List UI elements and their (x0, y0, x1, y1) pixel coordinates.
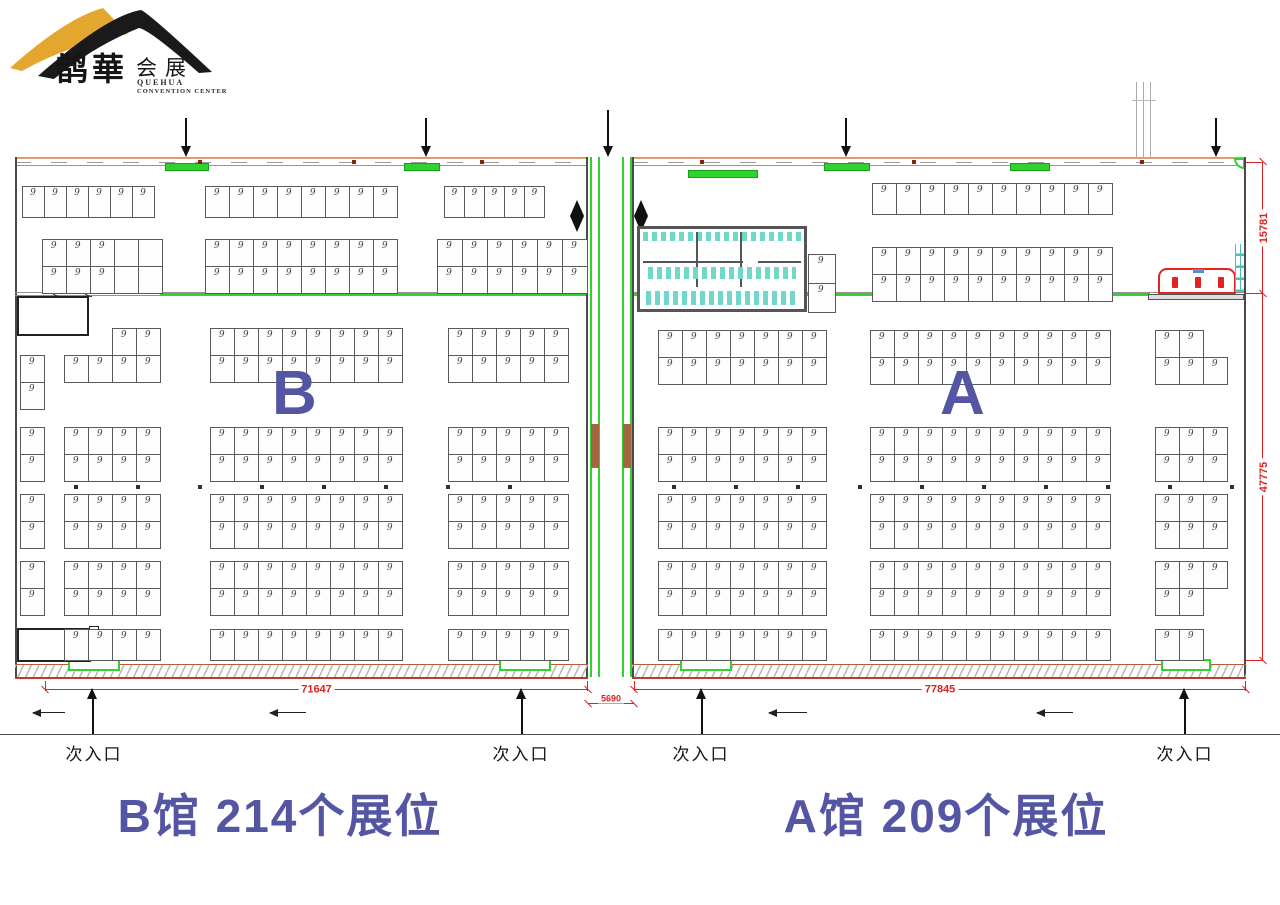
booth-cell-b: 9 (210, 521, 235, 549)
b-hall-top-wall (15, 157, 588, 166)
booth-cell-a: 9 (918, 494, 943, 522)
booth-cell-b: 9 (234, 521, 259, 549)
booth-cell-a: 9 (730, 330, 755, 358)
booth-cell-a: 9 (1155, 561, 1180, 589)
dimension-right-lower: 47775 (1262, 293, 1263, 660)
booth-cell-a: 9 (730, 588, 755, 616)
booth-cell-a: 9 (1155, 330, 1180, 358)
booth-cell-a: 9 (706, 629, 731, 661)
booth-cell-a: 9 (1086, 588, 1111, 616)
booth-cell-b: 9 (88, 454, 113, 482)
booth-cell-a: 9 (894, 357, 919, 385)
escalator-platform (1148, 294, 1244, 300)
booth-cell-a: 9 (1014, 494, 1039, 522)
booth-cell-b: 9 (66, 266, 91, 294)
escalator-icon (1158, 268, 1236, 294)
booth-cell-b: 9 (112, 454, 137, 482)
booth-cell-b: 9 (330, 588, 355, 616)
booth-cell-b: 9 (112, 427, 137, 455)
booth-cell-a: 9 (944, 247, 969, 275)
booth-cell-b: 9 (42, 239, 67, 267)
booth-cell-a: 9 (1155, 357, 1180, 385)
booth-cell-a: 9 (754, 494, 779, 522)
booth-cell-a: 9 (658, 330, 683, 358)
booth-cell-b: 9 (88, 494, 113, 522)
booth-cell-b: 9 (234, 427, 259, 455)
dimension-right-lower-value: 47775 (1258, 458, 1270, 495)
booth-cell-b: 9 (472, 454, 497, 482)
booth-cell-b: 9 (524, 186, 545, 218)
booth-cell-b: 9 (234, 629, 259, 661)
booth-cell-b: 9 (234, 328, 259, 356)
booth-cell-a: 9 (706, 494, 731, 522)
booth-cell-a: 9 (1062, 629, 1087, 661)
booth-cell-a: 9 (966, 454, 991, 482)
booth-cell-a: 9 (1203, 454, 1228, 482)
booth-cell-b: 9 (472, 494, 497, 522)
booth-cell-a: 9 (1062, 427, 1087, 455)
booth-cell-b: 9 (112, 588, 137, 616)
booth-cell-b: 9 (378, 521, 403, 549)
flow-arrow-left (33, 712, 65, 713)
booth-cell-a: 9 (730, 454, 755, 482)
booth-cell-b: 9 (306, 454, 331, 482)
double-door-icon (570, 200, 584, 232)
booth-cell-a: 9 (802, 629, 827, 661)
booth-cell-b: 9 (520, 328, 545, 356)
booth-cell-a: 9 (1038, 521, 1063, 549)
booth-cell-b: 9 (354, 494, 379, 522)
booth-cell-b: 9 (496, 328, 521, 356)
booth-cell-a: 9 (966, 521, 991, 549)
booth-cell-a: 9 (990, 521, 1015, 549)
booth-cell-a: 9 (1038, 330, 1063, 358)
booth-cell-b (138, 239, 163, 267)
booth-cell-b: 9 (210, 629, 235, 661)
booth-cell-b: 9 (378, 561, 403, 589)
booth-cell-a: 9 (1086, 629, 1111, 661)
booth-cell-a: 9 (1203, 521, 1228, 549)
booth-cell-a: 9 (658, 521, 683, 549)
booth-cell-b: 9 (512, 266, 538, 294)
dimension-a-width: 77845 (634, 689, 1246, 690)
booth-cell-a: 9 (1155, 629, 1180, 661)
booth-cell-a: 9 (1016, 274, 1041, 302)
entrance-arrowhead-down-icon (603, 146, 613, 157)
booth-cell-b: 9 (258, 328, 283, 356)
booth-cell-b: 9 (544, 521, 569, 549)
booth-cell-b: 9 (330, 629, 355, 661)
booth-cell-a: 9 (1062, 561, 1087, 589)
booth-cell-a: 9 (802, 454, 827, 482)
entrance-arrow-up (521, 697, 523, 734)
booth-cell-b: 9 (136, 328, 161, 356)
booth-cell-b: 9 (210, 355, 235, 383)
booth-cell-b: 9 (277, 266, 302, 294)
booth-cell-b: 9 (462, 266, 488, 294)
restroom-fixtures (646, 291, 798, 305)
booth-cell-b: 9 (520, 427, 545, 455)
booth-cell-a: 9 (990, 494, 1015, 522)
booth-cell-b: 9 (437, 239, 463, 267)
utility-dot (74, 485, 78, 489)
booth-cell-b: 9 (520, 521, 545, 549)
booth-cell-a: 9 (754, 561, 779, 589)
booth-cell-a: 9 (730, 629, 755, 661)
booth-cell-a: 9 (1062, 330, 1087, 358)
booth-cell-b: 9 (520, 629, 545, 661)
booth-cell-a: 9 (918, 454, 943, 482)
booth-cell-b: 9 (132, 186, 155, 218)
corridor-wall-left (590, 157, 600, 677)
booth-cell-a: 9 (990, 588, 1015, 616)
booth-cell-a: 9 (1086, 454, 1111, 482)
booth-cell-b (138, 266, 163, 294)
booth-cell-a: 9 (682, 427, 707, 455)
booth-cell-a: 9 (870, 357, 895, 385)
booth-cell-a: 9 (1040, 274, 1065, 302)
booth-cell-b: 9 (472, 629, 497, 661)
booth-cell-b: 9 (136, 521, 161, 549)
booth-cell-b: 9 (448, 561, 473, 589)
door-segment (688, 170, 758, 178)
booth-cell-b: 9 (136, 629, 161, 661)
booth-cell-b: 9 (282, 521, 307, 549)
booth-cell-b: 9 (448, 629, 473, 661)
escalator-detail (1218, 277, 1224, 288)
booth-cell-a: 9 (754, 588, 779, 616)
exterior-pipe (1143, 82, 1144, 158)
booth-cell-a: 9 (1014, 629, 1039, 661)
booth-cell-b: 9 (496, 454, 521, 482)
booth-cell-a: 9 (1038, 357, 1063, 385)
escalator-detail (1172, 277, 1178, 288)
booth-cell-b: 9 (448, 454, 473, 482)
booth-cell-a: 9 (896, 247, 921, 275)
booth-cell-b: 9 (64, 561, 89, 589)
booth-cell-b: 9 (448, 521, 473, 549)
booth-cell-b: 9 (64, 588, 89, 616)
flow-arrow-left (1037, 712, 1073, 713)
booth-cell-b: 9 (136, 588, 161, 616)
booth-cell-a: 9 (1064, 247, 1089, 275)
a-hall-left-wall (632, 157, 634, 679)
booth-cell-b: 9 (520, 355, 545, 383)
booth-cell-b: 9 (373, 239, 398, 267)
entrance-label: 次入口 (57, 740, 131, 765)
booth-cell-b: 9 (282, 328, 307, 356)
booth-cell-b: 9 (496, 561, 521, 589)
booth-cell-b: 9 (306, 427, 331, 455)
booth-cell-a: 9 (1155, 454, 1180, 482)
door-segment (1010, 163, 1050, 171)
booth-cell-a: 9 (778, 494, 803, 522)
booth-cell-b: 9 (88, 588, 113, 616)
office-room (17, 296, 89, 336)
booth-cell-b: 9 (277, 239, 302, 267)
wall-mark (1140, 160, 1144, 164)
dimension-right-upper-value: 15781 (1258, 209, 1270, 246)
booth-cell-a: 9 (658, 454, 683, 482)
booth-cell-a: 9 (778, 454, 803, 482)
utility-dot (858, 485, 862, 489)
booth-cell-b: 9 (253, 266, 278, 294)
booth-cell-b: 9 (537, 266, 563, 294)
booth-cell-a: 9 (966, 494, 991, 522)
corridor-wall-right (622, 157, 632, 677)
booth-cell-a: 9 (1179, 521, 1204, 549)
booth-cell-a: 9 (870, 561, 895, 589)
booth-cell-b: 9 (42, 266, 67, 294)
booth-cell-b: 9 (354, 454, 379, 482)
booth-cell-a: 9 (894, 427, 919, 455)
booth-cell-a: 9 (802, 330, 827, 358)
booth-cell-a: 9 (1062, 494, 1087, 522)
booth-cell-b: 9 (330, 561, 355, 589)
booth-cell-b: 9 (562, 266, 588, 294)
floor-plan: 9999999999999999999999999999999999999999… (0, 0, 1280, 760)
booth-cell-a: 9 (918, 427, 943, 455)
booth-cell-a: 9 (918, 629, 943, 661)
booth-cell-b: 9 (205, 239, 230, 267)
exterior-pipe (1150, 82, 1151, 158)
entrance-arrow-up (1184, 697, 1186, 734)
booth-cell-a: 9 (1179, 629, 1204, 661)
booth-cell-b: 9 (229, 186, 254, 218)
booth-cell-b: 9 (378, 427, 403, 455)
booth-cell-a: 9 (808, 254, 836, 284)
booth-cell-b: 9 (462, 239, 488, 267)
booth-cell-a: 9 (920, 183, 945, 215)
booth-cell-a: 9 (730, 357, 755, 385)
booth-cell-a: 9 (754, 521, 779, 549)
utility-dot (1106, 485, 1110, 489)
entrance-arrowhead-down-icon (1211, 146, 1221, 157)
booth-cell-a: 9 (1203, 494, 1228, 522)
booth-cell-b: 9 (354, 355, 379, 383)
booth-cell-b: 9 (330, 521, 355, 549)
wall-mark (198, 160, 202, 164)
dim-connector (1246, 660, 1263, 661)
booth-cell-b: 9 (306, 629, 331, 661)
booth-cell-a: 9 (1155, 427, 1180, 455)
booth-cell-b: 9 (205, 266, 230, 294)
a-hall-right-wall (1244, 157, 1246, 679)
booth-cell-b: 9 (487, 239, 513, 267)
booth-cell-b: 9 (229, 266, 254, 294)
booth-cell-a: 9 (1179, 454, 1204, 482)
booth-cell-a: 9 (682, 330, 707, 358)
booth-cell-a: 9 (872, 274, 897, 302)
booth-cell-a: 9 (992, 247, 1017, 275)
booth-cell-b: 9 (472, 328, 497, 356)
booth-cell-a: 9 (1062, 454, 1087, 482)
booth-cell-b: 9 (112, 521, 137, 549)
booth-cell-b: 9 (472, 588, 497, 616)
booth-cell-b: 9 (325, 239, 350, 267)
booth-cell-a: 9 (990, 427, 1015, 455)
booth-cell-a: 9 (1016, 183, 1041, 215)
entrance-arrow-down (845, 118, 847, 148)
entrance-arrowhead-down-icon (421, 146, 431, 157)
booth-cell-b: 9 (544, 588, 569, 616)
booth-cell-a: 9 (1088, 274, 1113, 302)
booth-cell-a: 9 (990, 357, 1015, 385)
booth-cell-b: 9 (349, 186, 374, 218)
booth-cell-b: 9 (90, 266, 115, 294)
booth-cell-b: 9 (378, 629, 403, 661)
utility-dot (1168, 485, 1172, 489)
booth-cell-b: 9 (234, 588, 259, 616)
booth-cell-a: 9 (730, 521, 755, 549)
booth-cell-a: 9 (706, 357, 731, 385)
booth-cell-b: 9 (210, 588, 235, 616)
corridor-wall-brown-segment (591, 424, 599, 468)
booth-cell-b: 9 (354, 588, 379, 616)
booth-cell-a: 9 (1038, 588, 1063, 616)
booth-cell-b: 9 (496, 494, 521, 522)
booth-cell-b: 9 (112, 328, 137, 356)
booth-cell-a: 9 (682, 588, 707, 616)
dimension-corridor-width-value: 5690 (598, 694, 624, 704)
booth-cell-b: 9 (330, 427, 355, 455)
booth-cell-b: 9 (210, 427, 235, 455)
booth-cell-a: 9 (870, 454, 895, 482)
booth-cell-b: 9 (306, 494, 331, 522)
booth-cell-b: 9 (354, 629, 379, 661)
wall-mark (480, 160, 484, 164)
booth-cell-b: 9 (378, 494, 403, 522)
restroom-wall (643, 261, 743, 263)
utility-dot (796, 485, 800, 489)
flow-arrow-left (270, 712, 306, 713)
booth-cell-a: 9 (1014, 521, 1039, 549)
booth-cell-a: 9 (1179, 561, 1204, 589)
exterior-pipe (1136, 82, 1137, 158)
booth-cell-a: 9 (706, 588, 731, 616)
booth-cell-a: 9 (966, 427, 991, 455)
booth-cell-a: 9 (802, 521, 827, 549)
booth-cell-a: 9 (968, 274, 993, 302)
booth-cell-a: 9 (944, 274, 969, 302)
booth-cell-a: 9 (942, 521, 967, 549)
booth-cell-a: 9 (1086, 521, 1111, 549)
booth-cell-a: 9 (1038, 494, 1063, 522)
booth-cell-b: 9 (234, 454, 259, 482)
booth-cell-b: 9 (464, 186, 485, 218)
booth-cell-a: 9 (920, 274, 945, 302)
booth-cell-a: 9 (1179, 427, 1204, 455)
booth-cell-a: 9 (944, 183, 969, 215)
booth-cell-a: 9 (872, 183, 897, 215)
booth-cell-a: 9 (706, 330, 731, 358)
booth-cell-b: 9 (306, 588, 331, 616)
ground-line (0, 734, 1280, 735)
booth-cell-a: 9 (992, 183, 1017, 215)
b-hall-left-wall (15, 157, 17, 679)
booth-cell-b: 9 (258, 561, 283, 589)
booth-cell-b: 9 (448, 328, 473, 356)
a-hall-title: A馆 209个展位 (686, 780, 1206, 846)
booth-cell-b: 9 (234, 355, 259, 383)
booth-cell-b: 9 (544, 454, 569, 482)
booth-cell-b: 9 (258, 494, 283, 522)
booth-cell-a: 9 (918, 588, 943, 616)
booth-cell-a: 9 (1016, 247, 1041, 275)
booth-cell-a: 9 (894, 629, 919, 661)
booth-cell-b: 9 (282, 454, 307, 482)
booth-cell-a: 9 (942, 330, 967, 358)
booth-cell-b: 9 (437, 266, 463, 294)
booth-cell-b: 9 (544, 629, 569, 661)
booth-cell-a: 9 (730, 427, 755, 455)
booth-cell-b: 9 (64, 521, 89, 549)
booth-cell-a: 9 (870, 427, 895, 455)
booth-cell-a: 9 (1014, 454, 1039, 482)
booth-cell-a: 9 (1088, 247, 1113, 275)
booth-cell-a: 9 (1179, 357, 1204, 385)
dimension-a-width-value: 77845 (922, 683, 959, 695)
booth-cell-b: 9 (354, 328, 379, 356)
booth-cell-a: 9 (706, 427, 731, 455)
booth-cell-a: 9 (1038, 561, 1063, 589)
booth-cell-b: 9 (354, 561, 379, 589)
booth-cell-b: 9 (487, 266, 513, 294)
wall-mark (700, 160, 704, 164)
booth-cell-a: 9 (942, 494, 967, 522)
booth-cell-a: 9 (658, 427, 683, 455)
booth-cell-a: 9 (778, 521, 803, 549)
booth-cell-b: 9 (66, 186, 89, 218)
booth-cell-b: 9 (306, 328, 331, 356)
booth-cell-a: 9 (1086, 427, 1111, 455)
booth-cell-a: 9 (682, 454, 707, 482)
booth-cell-a: 9 (1064, 274, 1089, 302)
booth-cell-b: 9 (64, 355, 89, 383)
booth-cell-b: 9 (496, 521, 521, 549)
booth-cell-b: 9 (112, 355, 137, 383)
booth-cell-a: 9 (942, 427, 967, 455)
booth-cell-b: 9 (301, 266, 326, 294)
restroom-block (637, 226, 807, 312)
booth-cell-a: 9 (894, 494, 919, 522)
booth-cell-b: 9 (448, 494, 473, 522)
b-hall-letter: B (272, 358, 317, 429)
booth-cell-b: 9 (378, 355, 403, 383)
booth-cell-b: 9 (88, 186, 111, 218)
booth-cell-b: 9 (282, 427, 307, 455)
booth-cell-a: 9 (754, 427, 779, 455)
booth-cell-b: 9 (349, 266, 374, 294)
utility-dot (734, 485, 738, 489)
booth-cell-b: 9 (520, 454, 545, 482)
booth-cell-a: 9 (754, 629, 779, 661)
booth-cell-b: 9 (354, 521, 379, 549)
booth-cell-b: 9 (330, 454, 355, 482)
booth-cell-a: 9 (894, 330, 919, 358)
booth-cell-b: 9 (444, 186, 465, 218)
booth-cell-a: 9 (730, 561, 755, 589)
dimension-b-width-value: 71647 (298, 683, 335, 695)
dim-connector (1246, 293, 1263, 294)
booth-cell-a: 9 (1014, 588, 1039, 616)
booth-cell-b: 9 (378, 328, 403, 356)
booth-cell-b: 9 (112, 629, 137, 661)
booth-cell-b: 9 (88, 427, 113, 455)
booth-cell-b: 9 (472, 355, 497, 383)
booth-cell-b: 9 (301, 239, 326, 267)
booth-cell-a: 9 (1179, 330, 1204, 358)
